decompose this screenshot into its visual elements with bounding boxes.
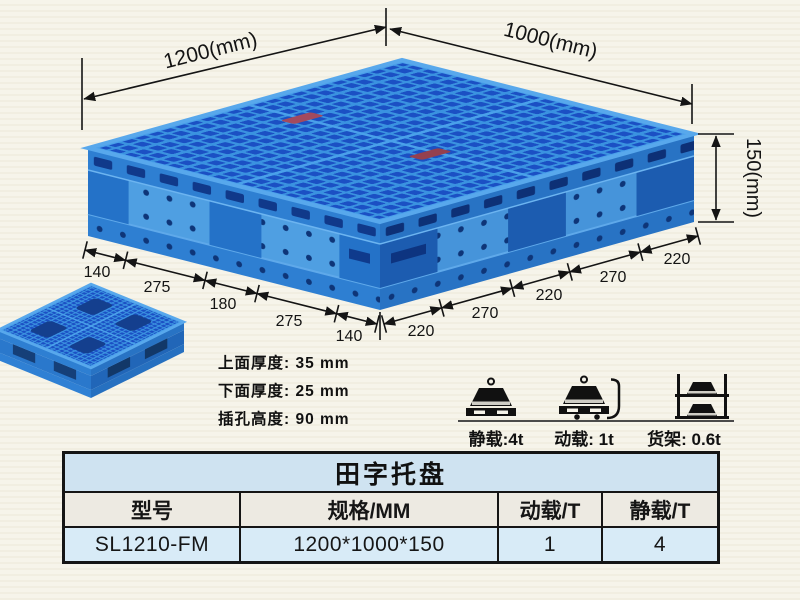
static-load-value: 4 [603, 528, 717, 561]
note-top-thickness: 上面厚度: 35 mm [218, 350, 350, 378]
small-pallet [0, 284, 184, 398]
dim-label: 220 [664, 251, 691, 268]
rack-load-icon [672, 372, 732, 420]
dim-label: 275 [144, 279, 171, 296]
load-labels-row: 静载:4t 动载: 1t 货架: 0.6t [458, 425, 734, 450]
dimension-150 [698, 134, 734, 222]
note-fork-height: 插孔高度: 90 mm [218, 406, 350, 434]
dim-label: 275 [276, 313, 303, 330]
note-bottom-thickness: 下面厚度: 25 mm [218, 378, 350, 406]
dim-label: 270 [472, 305, 499, 322]
dim-label: 270 [600, 269, 627, 286]
dim-label-length: 1200(mm) [161, 28, 259, 73]
dim-label: 140 [84, 264, 111, 281]
col-header-static-load: 静载/T [603, 493, 717, 526]
dim-label: 220 [536, 287, 563, 304]
dim-label-width: 1000(mm) [501, 18, 599, 63]
static-load-label: 静载:4t [458, 425, 534, 450]
model-value: SL1210-FM [65, 528, 239, 561]
dynamic-load-value: 1 [499, 528, 601, 561]
spec-table: 田字托盘 型号 规格/MM 动载/T 静载/T SL1210-FM 1200*1… [62, 451, 720, 564]
dim-label-height: 150(mm) [742, 138, 764, 218]
spec-value: 1200*1000*150 [241, 528, 497, 561]
col-header-model: 型号 [65, 493, 239, 526]
load-icons-row [458, 374, 734, 422]
dim-label: 220 [408, 323, 435, 340]
dim-label: 140 [336, 328, 363, 345]
col-header-dynamic-load: 动载/T [499, 493, 601, 526]
load-capacity-block: 静载:4t 动载: 1t 货架: 0.6t [458, 374, 734, 450]
thickness-notes: 上面厚度: 35 mm 下面厚度: 25 mm 插孔高度: 90 mm [218, 350, 350, 434]
col-header-spec: 规格/MM [241, 493, 497, 526]
rack-load-label: 货架: 0.6t [634, 425, 734, 450]
dim-label: 180 [210, 296, 237, 313]
static-load-icon [460, 376, 522, 420]
pallet-spec-sheet: { "dims": { "length": "1200(mm)", "width… [0, 0, 800, 600]
table-title: 田字托盘 [65, 454, 717, 491]
dynamic-load-icon [555, 372, 639, 420]
dynamic-load-label: 动载: 1t [536, 425, 632, 450]
